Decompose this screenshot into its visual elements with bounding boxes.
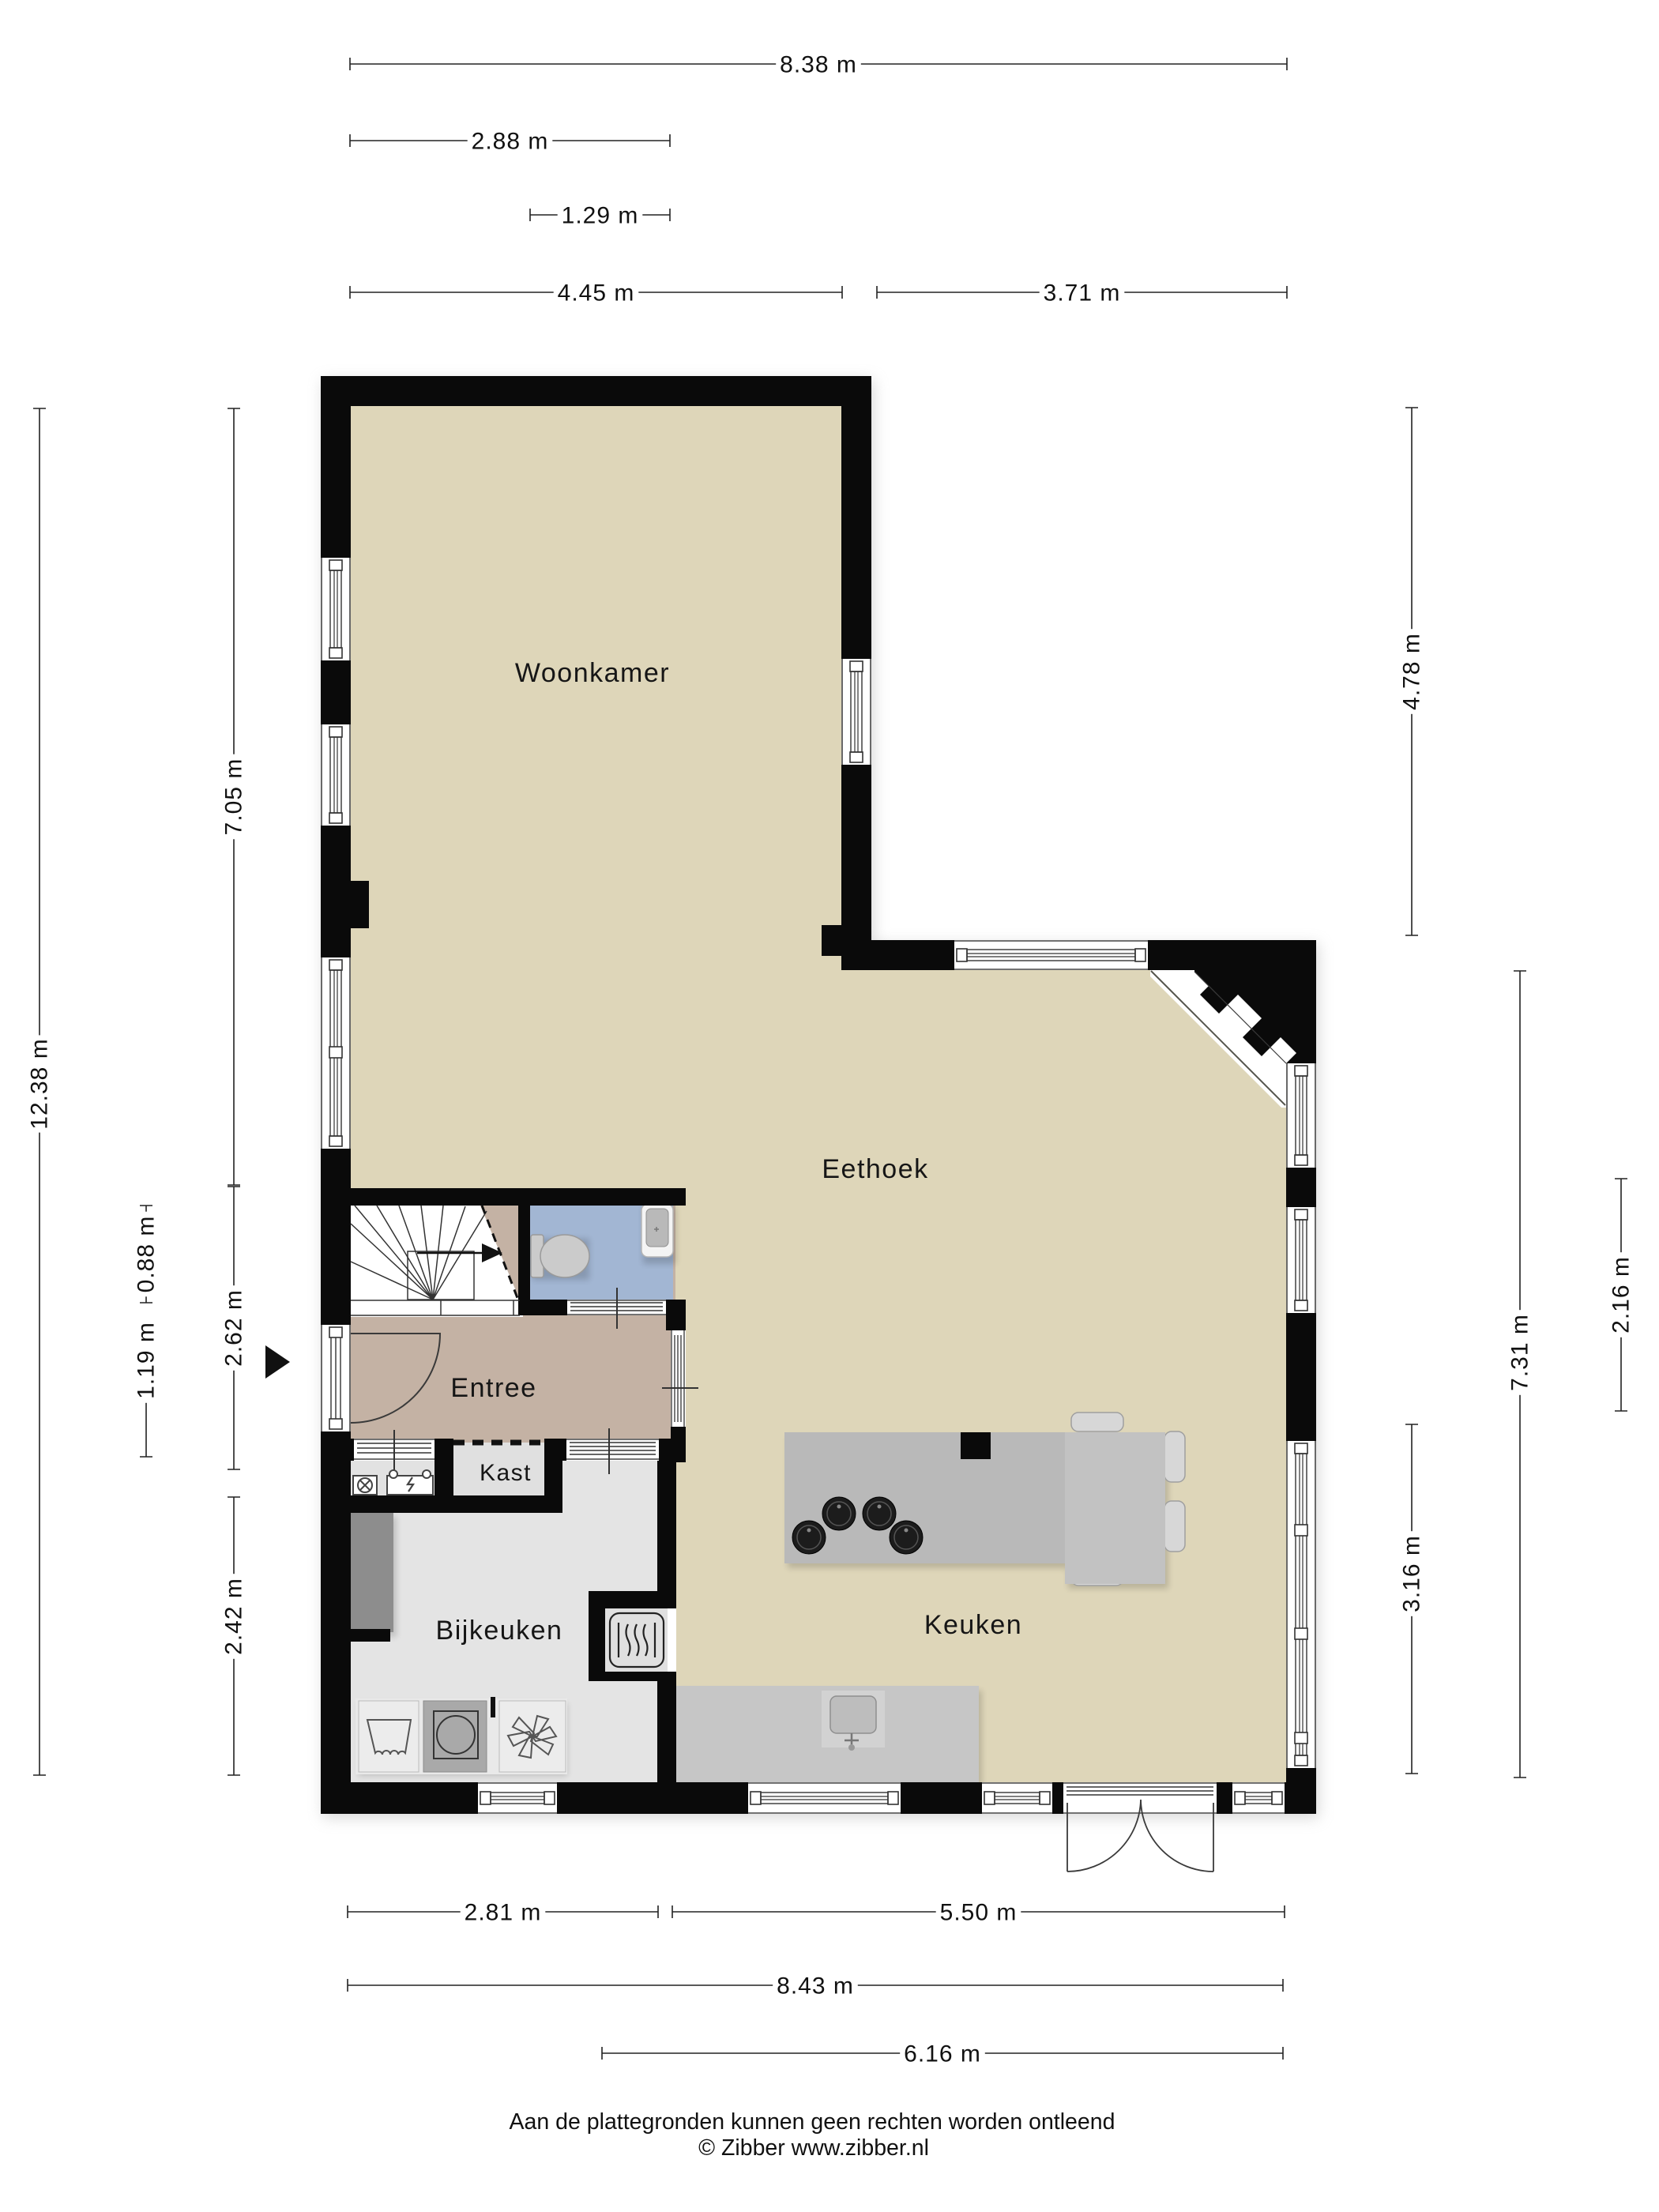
- svg-text:6.16 m: 6.16 m: [904, 2041, 981, 2067]
- svg-text:Bijkeuken: Bijkeuken: [436, 1616, 563, 1646]
- svg-text:12.38 m: 12.38 m: [27, 1038, 53, 1129]
- svg-text:Eethoek: Eethoek: [822, 1154, 928, 1184]
- svg-text:2.42 m: 2.42 m: [221, 1578, 247, 1655]
- svg-text:1.19 m: 1.19 m: [134, 1322, 160, 1399]
- svg-text:7.31 m: 7.31 m: [1507, 1314, 1533, 1391]
- svg-text:7.05 m: 7.05 m: [221, 758, 247, 836]
- svg-text:2.81 m: 2.81 m: [465, 1900, 542, 1926]
- svg-text:2.88 m: 2.88 m: [472, 129, 549, 155]
- svg-text:3.71 m: 3.71 m: [1044, 280, 1121, 307]
- svg-text:4.78 m: 4.78 m: [1399, 633, 1425, 710]
- svg-text:Entree: Entree: [450, 1373, 536, 1403]
- svg-text:5.50 m: 5.50 m: [940, 1900, 1018, 1926]
- svg-text:2.16 m: 2.16 m: [1608, 1256, 1635, 1334]
- svg-text:Keuken: Keuken: [924, 1610, 1022, 1640]
- svg-text:Kast: Kast: [480, 1460, 532, 1486]
- svg-text:8.43 m: 8.43 m: [777, 1973, 854, 1999]
- svg-text:2.62 m: 2.62 m: [221, 1289, 247, 1367]
- svg-text:© Zibber www.zibber.nl: © Zibber www.zibber.nl: [698, 2135, 929, 2161]
- svg-text:8.38 m: 8.38 m: [780, 52, 857, 78]
- svg-text:1.29 m: 1.29 m: [562, 203, 639, 229]
- svg-text:0.88 m: 0.88 m: [134, 1216, 160, 1293]
- svg-text:4.45 m: 4.45 m: [558, 280, 635, 307]
- svg-text:Woonkamer: Woonkamer: [515, 658, 670, 688]
- svg-text:3.16 m: 3.16 m: [1399, 1535, 1425, 1612]
- svg-text:Aan de plattegronden kunnen ge: Aan de plattegronden kunnen geen rechten…: [510, 2109, 1115, 2135]
